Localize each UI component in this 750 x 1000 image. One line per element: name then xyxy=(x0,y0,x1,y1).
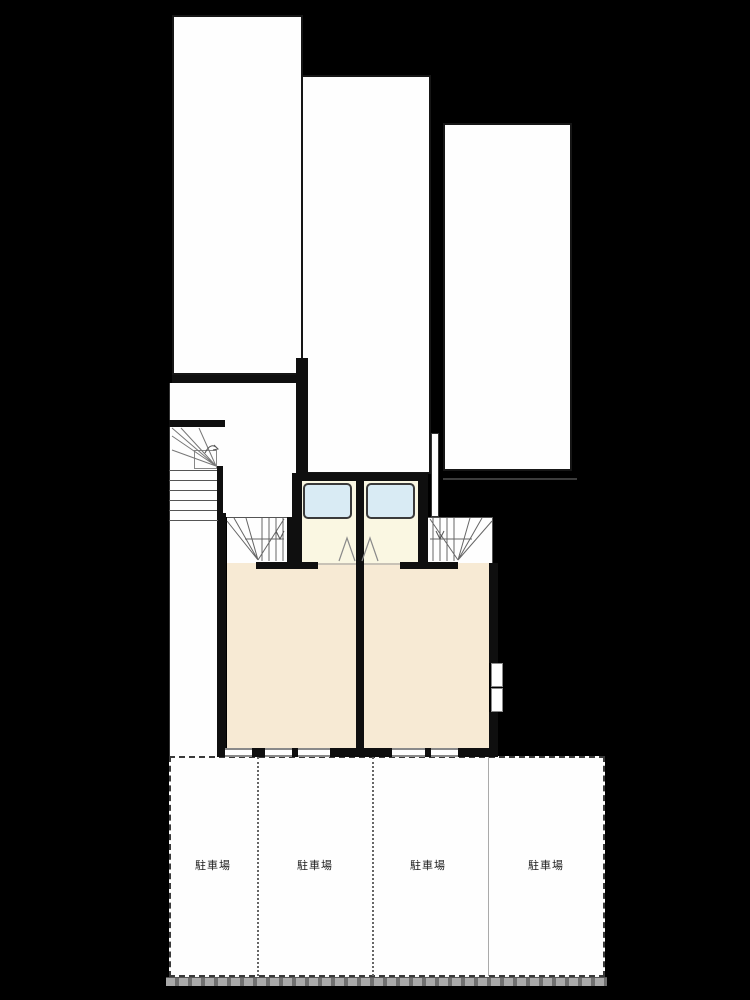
bottom-wall-segment xyxy=(252,748,265,757)
bottom-window-right-2 xyxy=(431,748,458,757)
parking-divider-2 xyxy=(372,757,374,976)
unit-right-outer-wall-upper xyxy=(489,563,498,663)
building-3-edge-line xyxy=(443,478,577,480)
building-1-base-wall xyxy=(172,375,303,383)
parking-divider-3 xyxy=(488,757,489,976)
entrance-hall-left xyxy=(302,519,356,563)
bottom-wall-center xyxy=(330,748,392,757)
exterior-stair-step xyxy=(169,520,218,521)
side-window-pane xyxy=(491,688,503,712)
parking-divider-1 xyxy=(257,757,259,976)
bottom-window-left-1 xyxy=(225,748,252,757)
building-2-side-wall xyxy=(296,358,308,475)
stair-bottom-wall-left xyxy=(256,562,318,569)
building-2 xyxy=(301,75,431,474)
room-left-unit xyxy=(227,563,356,748)
entrance-window-left xyxy=(303,483,352,519)
exterior-stair-top-wall xyxy=(169,420,225,427)
bottom-wall-corner-left xyxy=(217,748,225,757)
approach-area-upper xyxy=(169,383,296,473)
unit-left-outer-wall xyxy=(217,513,226,757)
parking-stall-label-3: 駐車場 xyxy=(386,857,470,873)
porch-left-wall xyxy=(292,473,302,563)
site-floor-plan: 駐車場 駐車場 駐車場 駐車場 xyxy=(0,0,750,1000)
bottom-window-left-3 xyxy=(298,748,330,757)
approach-walkway xyxy=(169,517,217,757)
porch-right-wall xyxy=(418,473,428,563)
party-wall xyxy=(356,473,364,757)
exterior-stair-step xyxy=(169,490,217,491)
exterior-stair-step xyxy=(169,510,217,511)
side-window-pane xyxy=(491,663,503,687)
parking-stall-label-4: 駐車場 xyxy=(504,857,588,873)
bottom-wall-corner-right xyxy=(458,748,498,757)
side-gap-strip xyxy=(431,433,439,517)
exterior-stair-step xyxy=(169,480,217,481)
exterior-stair-side-wall xyxy=(217,466,223,522)
building-3 xyxy=(443,123,572,471)
parking-stall-label-2: 駐車場 xyxy=(273,857,357,873)
room-right-unit xyxy=(364,563,489,748)
exterior-stair-landing xyxy=(194,450,217,469)
entrance-hall-right xyxy=(364,519,418,563)
exterior-stair-step xyxy=(169,470,217,471)
parking-stall-label-1: 駐車場 xyxy=(171,857,255,873)
bottom-window-left-2 xyxy=(265,748,292,757)
stair-bottom-wall-right xyxy=(400,562,458,569)
exterior-stair-step xyxy=(169,500,217,501)
side-window-right xyxy=(491,663,503,713)
entrance-window-right xyxy=(366,483,415,519)
staircase-right-unit xyxy=(428,517,493,563)
road-edge xyxy=(166,977,607,986)
bottom-window-right-1 xyxy=(392,748,425,757)
staircase-left-unit xyxy=(227,517,287,563)
stair-left-wall xyxy=(287,517,293,563)
building-1 xyxy=(172,15,303,375)
